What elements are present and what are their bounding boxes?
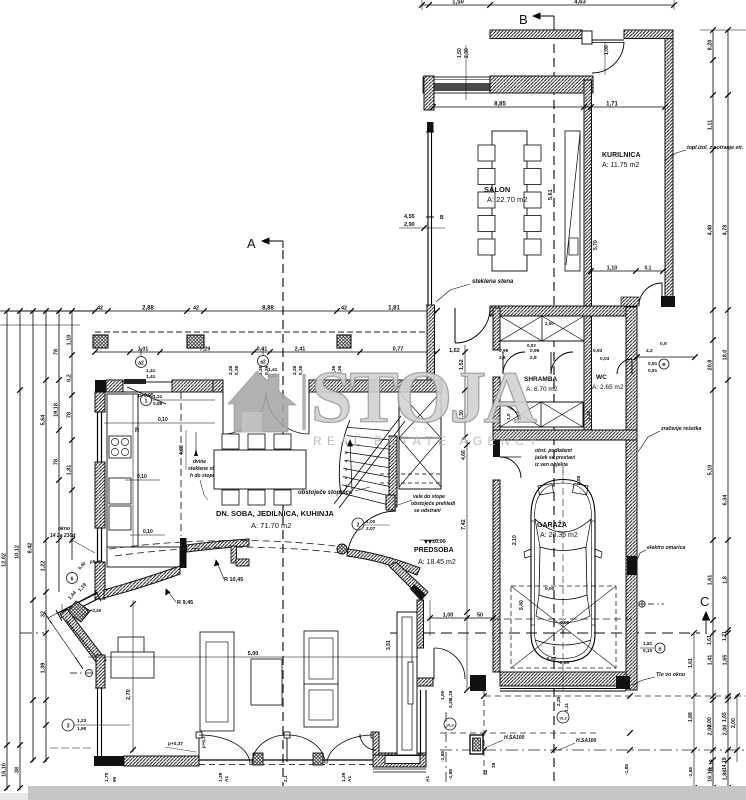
svg-text:7,42: 7,42 bbox=[461, 519, 467, 530]
svg-text:8,88: 8,88 bbox=[262, 305, 274, 311]
svg-text:obst. podtalemi: obst. podtalemi bbox=[535, 448, 573, 454]
svg-text:6: 6 bbox=[71, 577, 74, 583]
svg-text:5,64: 5,64 bbox=[40, 414, 46, 426]
svg-text:vele do stope: vele do stope bbox=[413, 494, 445, 500]
svg-text:1,01: 1,01 bbox=[138, 346, 149, 352]
svg-text:h do stope: h do stope bbox=[190, 473, 215, 479]
svg-text:1,50: 1,50 bbox=[457, 48, 463, 58]
svg-text:1,71: 1,71 bbox=[606, 101, 618, 107]
svg-text:2,36: 2,36 bbox=[228, 365, 234, 375]
svg-text:14 2a 230d: 14 2a 230d bbox=[50, 533, 76, 539]
svg-text:GARAŽA: GARAŽA bbox=[537, 520, 567, 529]
svg-text:1,88: 1,88 bbox=[576, 475, 582, 485]
svg-text:A: 20.35 m2: A: 20.35 m2 bbox=[540, 532, 578, 539]
svg-text:A: 11.75 m2: A: 11.75 m2 bbox=[602, 162, 639, 169]
svg-text:4,40: 4,40 bbox=[707, 225, 713, 236]
svg-text:VL2: VL2 bbox=[559, 716, 567, 721]
svg-text:elektro omarica: elektro omarica bbox=[647, 545, 685, 551]
svg-text:A: 71.70 m2: A: 71.70 m2 bbox=[251, 521, 291, 530]
svg-text:-0,05: -0,05 bbox=[545, 656, 556, 662]
svg-text:2,00: 2,00 bbox=[731, 718, 737, 728]
svg-text:1,21: 1,21 bbox=[722, 631, 728, 641]
svg-text:5,40: 5,40 bbox=[519, 600, 525, 610]
svg-text:2,70: 2,70 bbox=[126, 689, 132, 700]
svg-text:5,70: 5,70 bbox=[593, 240, 599, 250]
svg-text:5,00: 5,00 bbox=[248, 651, 259, 657]
svg-text:2,41: 2,41 bbox=[295, 346, 306, 352]
svg-text:A: 22.70 m2: A: 22.70 m2 bbox=[487, 195, 527, 204]
svg-text:1,65: 1,65 bbox=[722, 712, 728, 722]
svg-text:0,41: 0,41 bbox=[257, 346, 268, 352]
svg-text:se odstrani: se odstrani bbox=[414, 508, 441, 514]
svg-text:1,8: 1,8 bbox=[722, 576, 728, 584]
svg-text:1,50: 1,50 bbox=[452, 0, 464, 5]
svg-text:2,10: 2,10 bbox=[512, 535, 518, 545]
svg-text:dvine: dvine bbox=[193, 459, 206, 465]
svg-text:2,07: 2,07 bbox=[366, 526, 376, 532]
svg-text:A: A bbox=[247, 236, 256, 251]
svg-text:1,90: 1,90 bbox=[77, 726, 87, 732]
svg-text:KURILNICA: KURILNICA bbox=[602, 152, 641, 159]
svg-text:steklena stena: steklena stena bbox=[472, 279, 514, 285]
svg-text:REAL ESTATE AGENCY: REAL ESTATE AGENCY bbox=[313, 434, 537, 448]
svg-text:1,70: 1,70 bbox=[104, 772, 110, 782]
svg-text:4,68: 4,68 bbox=[461, 450, 467, 460]
svg-text:16,19: 16,19 bbox=[709, 759, 715, 772]
svg-text:R: R bbox=[135, 428, 140, 434]
svg-text:3: 3 bbox=[66, 724, 69, 730]
svg-text:0,88: 0,88 bbox=[153, 401, 163, 407]
svg-text:5,10: 5,10 bbox=[707, 465, 713, 476]
svg-text:0,93: 0,93 bbox=[593, 348, 603, 354]
svg-text:0,10: 0,10 bbox=[643, 648, 653, 654]
svg-text:1,22: 1,22 bbox=[40, 561, 46, 572]
svg-text:H.SA100: H.SA100 bbox=[576, 738, 597, 744]
svg-text:8,85: 8,85 bbox=[494, 101, 506, 107]
svg-text:1,39: 1,39 bbox=[341, 772, 347, 782]
svg-text:19,18: 19,18 bbox=[53, 403, 59, 417]
svg-text:4,55: 4,55 bbox=[404, 214, 415, 220]
svg-text:B: B bbox=[440, 215, 444, 221]
svg-text:1,10: 1,10 bbox=[66, 335, 72, 346]
svg-text:38: 38 bbox=[14, 767, 20, 773]
svg-text:0,77: 0,77 bbox=[393, 346, 404, 352]
svg-text:3,51: 3,51 bbox=[386, 640, 392, 650]
svg-text:42: 42 bbox=[341, 305, 347, 311]
svg-text:1,23: 1,23 bbox=[77, 718, 87, 724]
svg-text:78: 78 bbox=[53, 349, 59, 355]
svg-text:42: 42 bbox=[483, 769, 489, 775]
svg-text:-1,88: -1,88 bbox=[448, 769, 454, 780]
svg-text:-1,88: -1,88 bbox=[688, 767, 694, 778]
svg-text:1,61: 1,61 bbox=[688, 658, 694, 668]
svg-text:16,10: 16,10 bbox=[1, 763, 7, 777]
svg-text:R 10,45: R 10,45 bbox=[224, 577, 243, 583]
svg-text:2,00: 2,00 bbox=[722, 725, 728, 736]
svg-text:14,19: 14,19 bbox=[722, 757, 728, 770]
svg-text:PREDSOBA: PREDSOBA bbox=[414, 547, 454, 554]
svg-text:1,88: 1,88 bbox=[688, 712, 694, 722]
svg-text:1,18: 1,18 bbox=[448, 690, 454, 700]
svg-text:DN. SOBA, JEDILNICA, KUHINJA: DN. SOBA, JEDILNICA, KUHINJA bbox=[216, 509, 335, 518]
svg-text:0,00: 0,00 bbox=[545, 586, 555, 592]
svg-text:VL2: VL2 bbox=[446, 723, 454, 728]
svg-text:2,35: 2,35 bbox=[448, 698, 454, 708]
svg-text:10,12: 10,12 bbox=[14, 545, 20, 559]
svg-text:2,36: 2,36 bbox=[292, 365, 298, 375]
svg-text:78: 78 bbox=[53, 459, 59, 465]
svg-text:5,61: 5,61 bbox=[548, 189, 554, 200]
svg-text:C: C bbox=[700, 594, 709, 609]
svg-text:1,00: 1,00 bbox=[366, 519, 376, 525]
svg-text:obstoječe prehledi: obstoječe prehledi bbox=[411, 501, 456, 507]
svg-text:4,63: 4,63 bbox=[574, 0, 586, 5]
svg-text:A: 18.45 m2: A: 18.45 m2 bbox=[418, 559, 456, 566]
svg-text:-0,05: -0,05 bbox=[558, 660, 569, 666]
svg-text:2,88: 2,88 bbox=[142, 305, 154, 311]
svg-text:1,81: 1,81 bbox=[388, 305, 400, 311]
svg-text:p+0,40: p+0,40 bbox=[87, 608, 102, 613]
svg-text:okno: okno bbox=[58, 526, 70, 532]
svg-text:4,78: 4,78 bbox=[722, 225, 728, 236]
svg-text:1,65: 1,65 bbox=[722, 655, 728, 666]
svg-text:jašek se prestavi: jašek se prestavi bbox=[534, 455, 576, 461]
svg-text:2,35: 2,35 bbox=[556, 696, 562, 706]
svg-text:A1: A1 bbox=[224, 776, 230, 782]
svg-text:4,68: 4,68 bbox=[179, 445, 185, 455]
svg-text:0,10: 0,10 bbox=[143, 529, 153, 535]
svg-text:A1: A1 bbox=[347, 776, 353, 782]
svg-text:1: 1 bbox=[145, 399, 148, 405]
svg-text:H.SA100: H.SA100 bbox=[504, 735, 525, 741]
svg-text:1,00: 1,00 bbox=[440, 690, 446, 700]
svg-text:1,41: 1,41 bbox=[146, 374, 156, 380]
svg-text:0,81: 0,81 bbox=[648, 361, 658, 367]
svg-text:1,11: 1,11 bbox=[564, 703, 570, 712]
svg-text:0,99: 0,99 bbox=[499, 348, 509, 354]
svg-text:90: 90 bbox=[112, 776, 118, 782]
svg-text:a2: a2 bbox=[138, 361, 144, 367]
svg-text:78: 78 bbox=[66, 412, 72, 418]
svg-text:1,20: 1,20 bbox=[586, 410, 592, 420]
svg-text:0,9: 0,9 bbox=[660, 341, 667, 347]
svg-text:8,20: 8,20 bbox=[707, 40, 713, 51]
svg-text:2,30: 2,30 bbox=[464, 48, 470, 58]
svg-text:p+0,37: p+0,37 bbox=[201, 733, 206, 748]
svg-text:zračenje rešetka: zračenje rešetka bbox=[660, 426, 701, 432]
svg-text:a2: a2 bbox=[260, 360, 266, 366]
svg-text:1,88: 1,88 bbox=[722, 770, 728, 781]
svg-text:obstoječe stopnice: obstoječe stopnice bbox=[298, 490, 353, 496]
svg-text:1,61: 1,61 bbox=[707, 575, 713, 586]
svg-text:A1: A1 bbox=[425, 776, 431, 782]
svg-text:0,03: 0,03 bbox=[527, 343, 536, 348]
svg-text:0,81: 0,81 bbox=[648, 368, 658, 374]
svg-text:-1,88: -1,88 bbox=[440, 751, 446, 762]
svg-text:0,10: 0,10 bbox=[158, 417, 168, 423]
svg-text:1,41: 1,41 bbox=[146, 368, 156, 374]
svg-text:8,42: 8,42 bbox=[27, 543, 33, 554]
svg-text:A: 2.65 m2: A: 2.65 m2 bbox=[592, 384, 624, 391]
svg-text:4,2: 4,2 bbox=[646, 348, 653, 354]
svg-text:6,34: 6,34 bbox=[722, 494, 728, 506]
svg-text:2,90: 2,90 bbox=[404, 222, 415, 228]
svg-text:1,81: 1,81 bbox=[66, 465, 72, 476]
svg-text:p0,40: p0,40 bbox=[90, 559, 102, 564]
svg-text:p+0,37: p+0,37 bbox=[168, 741, 183, 747]
svg-text:1,81: 1,81 bbox=[643, 641, 653, 647]
svg-text:2,00: 2,00 bbox=[707, 717, 713, 727]
svg-text:0,1: 0,1 bbox=[645, 265, 652, 271]
svg-text:2,00: 2,00 bbox=[545, 321, 554, 326]
svg-text:1,41: 1,41 bbox=[707, 655, 713, 666]
svg-text:0,10: 0,10 bbox=[137, 474, 147, 480]
svg-text:1,21: 1,21 bbox=[153, 394, 163, 400]
svg-text:0,36: 0,36 bbox=[234, 365, 240, 375]
svg-text:R 9,45: R 9,45 bbox=[177, 600, 193, 606]
svg-text:1,10: 1,10 bbox=[607, 265, 618, 271]
svg-text:0,2: 0,2 bbox=[66, 374, 72, 382]
svg-text:topl.izol. z notranje str.: topl.izol. z notranje str. bbox=[687, 145, 743, 151]
svg-text:42: 42 bbox=[97, 305, 103, 311]
svg-text:2,1: 2,1 bbox=[283, 775, 289, 782]
svg-text:SALON: SALON bbox=[484, 185, 510, 194]
svg-text:0,36: 0,36 bbox=[298, 365, 304, 375]
svg-text:STOJA: STOJA bbox=[311, 357, 537, 439]
svg-text:42: 42 bbox=[193, 305, 199, 311]
svg-text:2: 2 bbox=[357, 523, 360, 529]
svg-text:0,03: 0,03 bbox=[600, 356, 610, 362]
svg-text:50: 50 bbox=[477, 612, 483, 618]
svg-text:WC: WC bbox=[596, 374, 607, 381]
svg-text:1,61: 1,61 bbox=[707, 635, 713, 645]
svg-text:20,8: 20,8 bbox=[707, 360, 713, 371]
svg-text:B: B bbox=[519, 12, 528, 27]
svg-text:0,99: 0,99 bbox=[530, 348, 540, 354]
svg-text:1,11: 1,11 bbox=[707, 120, 713, 130]
svg-text:38: 38 bbox=[491, 762, 497, 768]
svg-text:1,39: 1,39 bbox=[218, 772, 224, 782]
svg-text:-1,88: -1,88 bbox=[624, 764, 630, 775]
svg-text:18,0: 18,0 bbox=[722, 350, 728, 361]
svg-text:1,52: 1,52 bbox=[449, 348, 460, 354]
svg-text:Tlo vo okno: Tlo vo okno bbox=[656, 672, 685, 678]
svg-text:1,39: 1,39 bbox=[40, 663, 46, 674]
svg-text:1,00: 1,00 bbox=[443, 612, 454, 618]
svg-text:12,02: 12,02 bbox=[1, 553, 7, 567]
